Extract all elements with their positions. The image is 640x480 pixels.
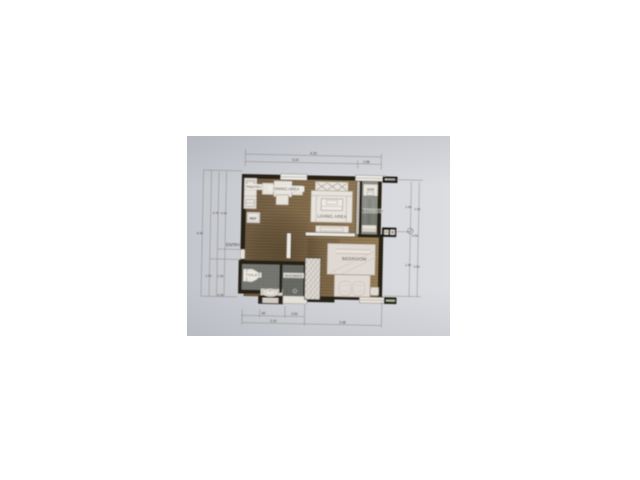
svg-text:5.35: 5.35 — [197, 231, 203, 235]
svg-text:0.90: 0.90 — [291, 312, 298, 316]
svg-text:2.48: 2.48 — [339, 321, 346, 325]
svg-text:3.70: 3.70 — [213, 211, 219, 215]
svg-text:3.10: 3.10 — [292, 158, 299, 162]
svg-text:TOILET: TOILET — [246, 272, 261, 277]
svg-text:SHOWER: SHOWER — [285, 273, 303, 278]
svg-text:1.00: 1.00 — [205, 274, 211, 278]
svg-text:DINING AREA: DINING AREA — [273, 186, 300, 192]
svg-text:REF: REF — [249, 216, 257, 220]
svg-text:2.00: 2.00 — [412, 234, 418, 238]
svg-text:LIVING AREA: LIVING AREA — [317, 214, 347, 220]
svg-text:1.55: 1.55 — [414, 207, 420, 211]
svg-text:BEDROOM: BEDROOM — [342, 256, 367, 262]
svg-text:0.30: 0.30 — [217, 293, 223, 297]
svg-text:1.98: 1.98 — [363, 160, 370, 164]
svg-text:2.50: 2.50 — [414, 265, 420, 269]
svg-text:1.50: 1.50 — [405, 205, 411, 209]
svg-text:1.30: 1.30 — [217, 274, 223, 278]
svg-text:2.19: 2.19 — [270, 319, 277, 323]
svg-text:1.50: 1.50 — [405, 263, 411, 267]
svg-text:ENTRY: ENTRY — [226, 242, 240, 247]
svg-text:4.10: 4.10 — [221, 211, 227, 215]
svg-text:BALCONY: BALCONY — [362, 208, 384, 213]
svg-text:.90: .90 — [261, 312, 266, 316]
svg-text:4.10: 4.10 — [310, 151, 317, 155]
svg-text:W/M: W/M — [367, 188, 374, 192]
svg-text:PANTRY: PANTRY — [246, 184, 262, 189]
